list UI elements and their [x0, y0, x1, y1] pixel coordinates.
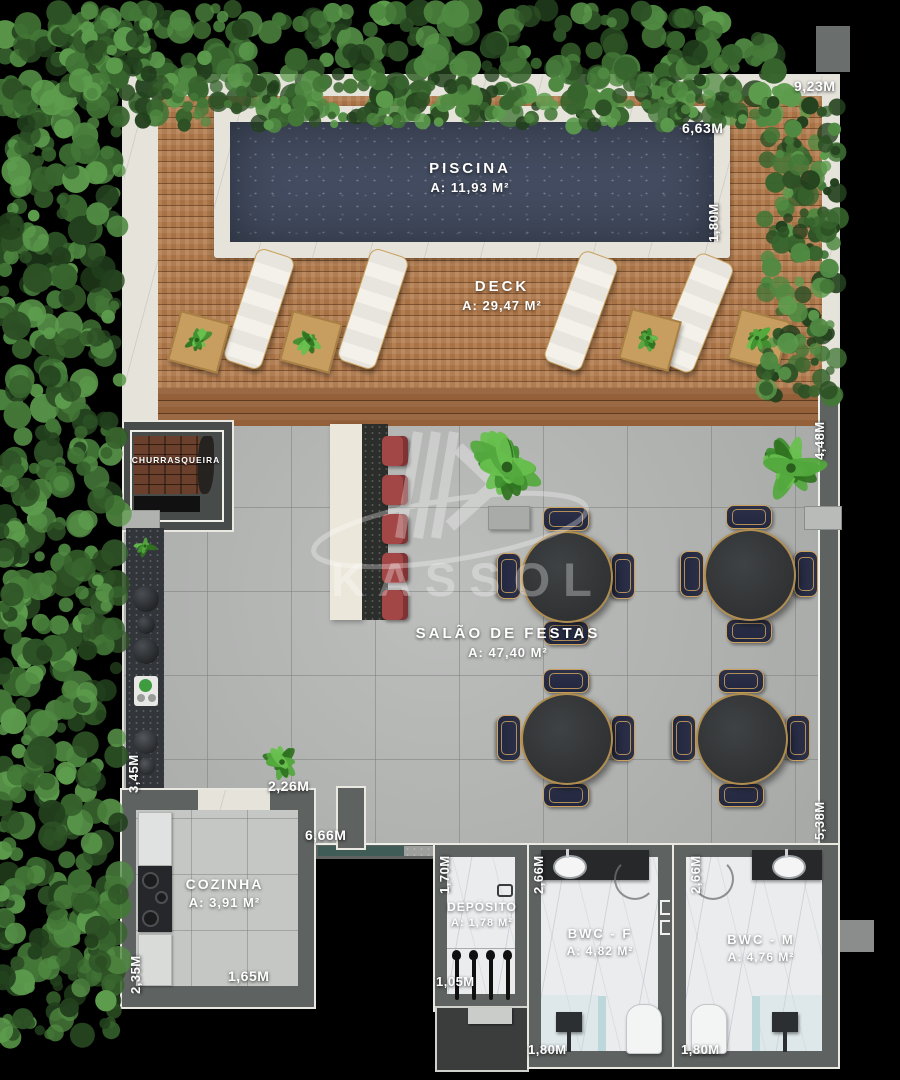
- dim-right-upper: 4,48M: [812, 421, 827, 460]
- bwcm-towel-hook-2: [660, 920, 670, 935]
- bwcf-faucet-icon: [566, 849, 569, 858]
- deposito-door-handle: [497, 884, 513, 897]
- label-piscina: PISCINA A: 11,93 M²: [375, 160, 565, 195]
- tile-step: [122, 510, 160, 530]
- closet-door-leaf: [468, 1008, 512, 1024]
- bwcf-sink: [553, 855, 587, 879]
- counter-burner-1: [134, 730, 158, 754]
- bwcf-shower-head-icon: [556, 1012, 582, 1032]
- label-deposito: DEPÓSITO A: 1,78 M²: [436, 900, 528, 929]
- bwcm-towel-hook-1: [660, 900, 670, 915]
- label-bwc-m: BWC - M A: 4,76 M²: [702, 932, 820, 964]
- dim-cozinha-top: 2,26M: [268, 778, 309, 794]
- label-salao: SALÃO DE FESTAS A: 47,40 M²: [388, 625, 628, 660]
- dim-bwcm-bottom: 1,80M: [681, 1042, 720, 1057]
- dim-bwcf-bottom: 1,80M: [528, 1042, 567, 1057]
- counter-sink-plant: [139, 679, 152, 692]
- dim-bwcm-left: 2,66M: [688, 855, 703, 894]
- dim-cozinha-left: 2,35M: [128, 955, 143, 994]
- dim-bwcf-left: 2,66M: [531, 855, 546, 894]
- fridge-icon: [138, 812, 172, 866]
- deposito-shelf-line: [447, 948, 515, 949]
- label-cozinha: COZINHA A: 3,91 M²: [162, 876, 287, 910]
- cabinet-icon: [138, 934, 172, 986]
- counter-bowl-3: [133, 638, 159, 664]
- label-bwc-f: BWC - F A: 4,82 M²: [545, 926, 655, 958]
- bwcm-sink: [772, 855, 806, 879]
- counter-knob-1: [137, 694, 145, 702]
- counter-bowl-2: [137, 616, 155, 634]
- label-churrasqueira: CHURRASQUEIRA: [126, 455, 226, 465]
- bwcm-shower-head-icon: [772, 1012, 798, 1032]
- hedge-left: [0, 12, 134, 1049]
- bar-island: [330, 424, 362, 620]
- grill-icon: [134, 436, 200, 494]
- bwcm-shower-glass: [752, 996, 760, 1051]
- dim-top-right: 9,23M: [794, 78, 835, 94]
- bwcm-faucet-icon: [785, 849, 788, 858]
- dim-pool-width: 6,63M: [682, 120, 723, 136]
- pillar-right-low: [840, 920, 874, 952]
- bwcf-door-swing: [614, 858, 656, 900]
- counter-bowl-1: [133, 586, 159, 612]
- dim-cozinha-bottom: 1,65M: [228, 968, 269, 984]
- floor-plan-canvas: KASSOL PISCINA A: 11,93 M² DECK A: 29,47…: [0, 0, 900, 1080]
- pillar-top-right: [816, 26, 850, 72]
- dim-deposito-left: 1,70M: [437, 855, 452, 894]
- dim-salao-bottom: 6,66M: [305, 827, 346, 843]
- dim-pool-depth: 1,80M: [706, 203, 721, 242]
- bar-countertop: [362, 424, 388, 620]
- counter-knob-2: [148, 694, 156, 702]
- cozinha-door-opening: [198, 790, 270, 810]
- dim-right-lower: 5,38M: [812, 801, 827, 840]
- pillar-right-mid: [804, 506, 842, 530]
- dim-counter-left: 3,45M: [126, 754, 141, 793]
- deck-border-band: [158, 388, 822, 426]
- bwcm-shower-arm: [783, 1032, 787, 1052]
- bwcf-shower-arm: [567, 1032, 571, 1052]
- dim-deposito-bottom: 1,05M: [436, 974, 475, 989]
- grill-stone: [198, 436, 214, 494]
- bwcf-shower-glass: [598, 996, 606, 1051]
- bwcf-toilet-icon: [626, 1004, 662, 1054]
- label-deck: DECK A: 29,47 M²: [417, 278, 587, 313]
- stone-bench: [488, 506, 530, 530]
